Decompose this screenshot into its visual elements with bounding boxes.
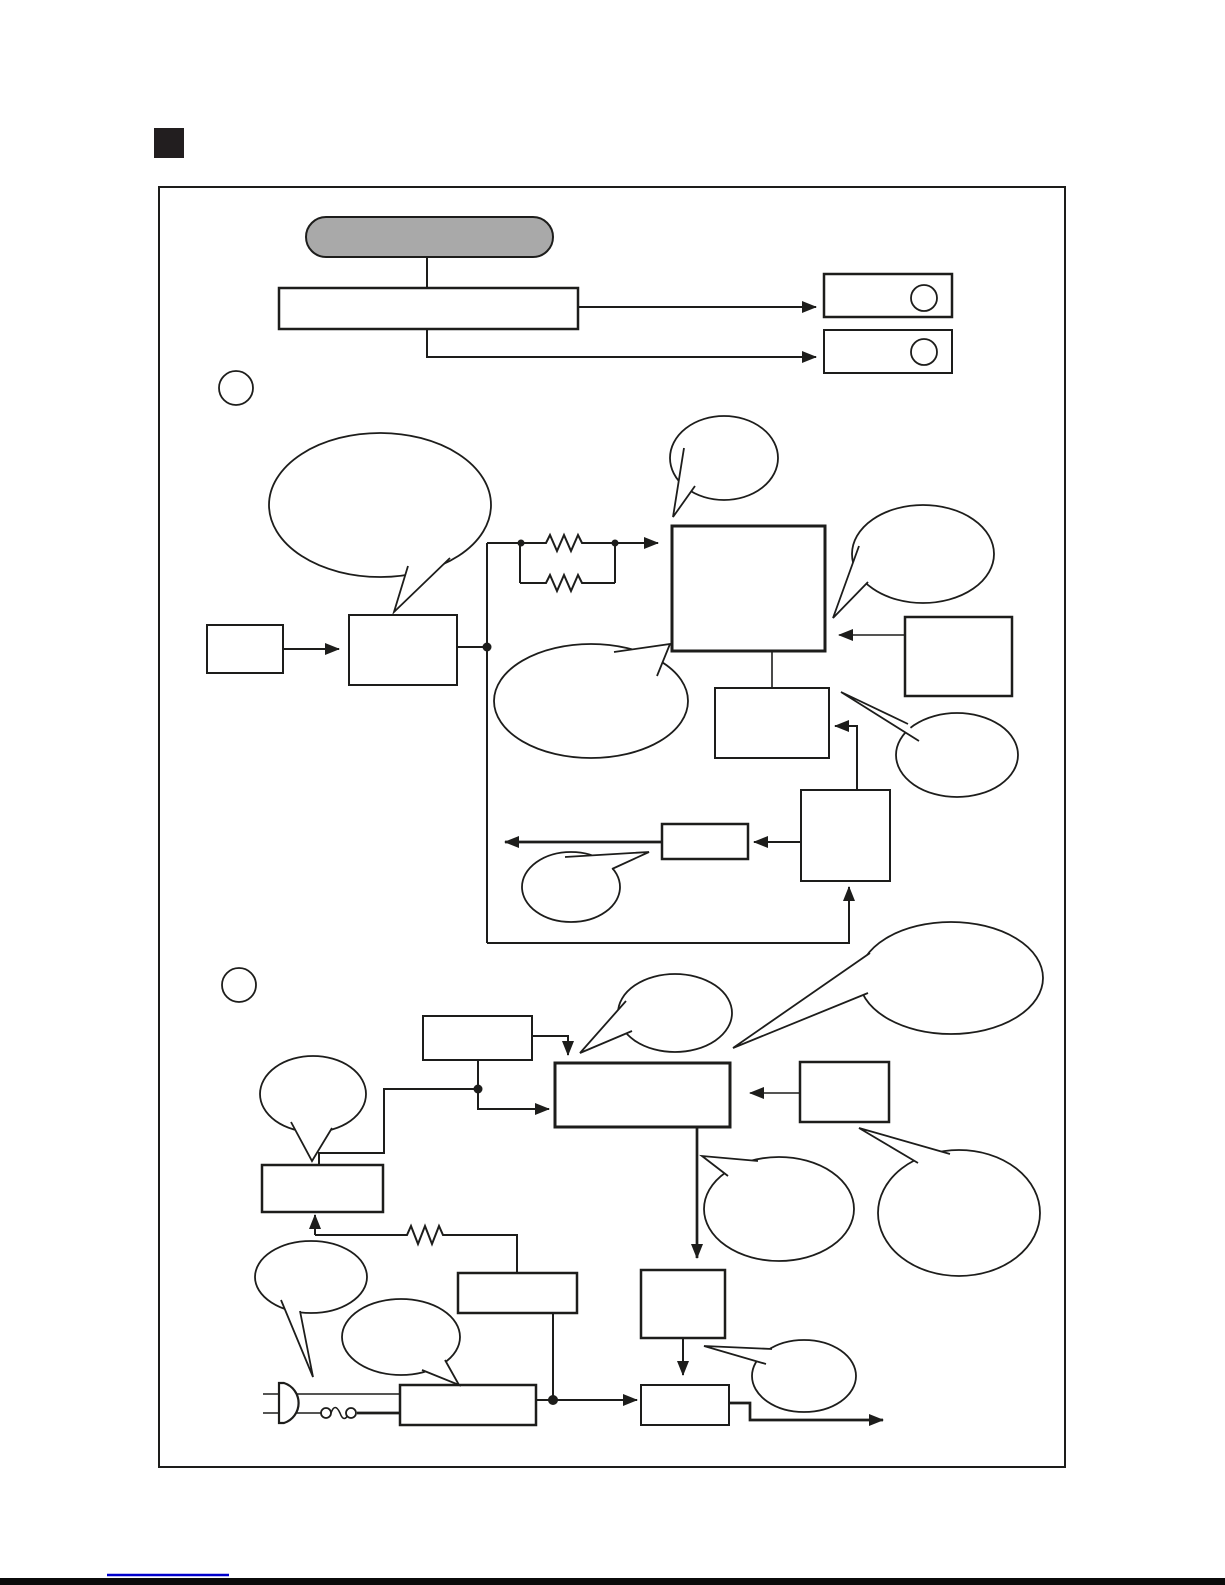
s2-relay-box xyxy=(641,1270,725,1338)
junction-dot xyxy=(548,1395,558,1405)
s1-process-box xyxy=(349,615,457,685)
section-heading-marker-square xyxy=(154,128,184,158)
page-bottom-bar xyxy=(0,1578,1225,1585)
note-bubble-s2-e xyxy=(702,1156,854,1261)
diagram-canvas xyxy=(0,0,1225,1585)
s2-left-box xyxy=(262,1165,383,1212)
fuse-terminal-circle xyxy=(321,1408,331,1418)
note-bubble-s2-d xyxy=(859,1128,1040,1276)
fuse-terminal-circle xyxy=(346,1408,356,1418)
junction-dot xyxy=(518,540,525,547)
s2-top-box xyxy=(423,1016,532,1060)
s1-main-box xyxy=(672,526,825,651)
s2-output-box xyxy=(641,1385,729,1425)
s2-lower-mid-box xyxy=(458,1273,577,1313)
note-bubble-s1-b xyxy=(670,416,778,517)
s1-input-box xyxy=(207,625,283,673)
speech-bubble-tail xyxy=(291,1122,332,1161)
speech-bubble-ellipse xyxy=(859,922,1043,1034)
s1-indicator-box-2 xyxy=(824,330,952,373)
speech-bubble-ellipse xyxy=(260,1056,366,1132)
speech-bubble-tail xyxy=(859,1128,950,1163)
indicator-lamp-circle xyxy=(911,339,937,365)
note-bubble-s1-e xyxy=(841,692,1018,797)
resistor-icon-bottom xyxy=(520,575,615,591)
junction-dot xyxy=(483,643,492,652)
arrow-to-indicator-box-2 xyxy=(427,329,816,357)
note-bubble-s1-a xyxy=(269,433,491,612)
speech-bubble-tail xyxy=(733,953,870,1048)
note-bubble-s2-c xyxy=(260,1056,366,1161)
junction-dot xyxy=(612,540,619,547)
step-marker-circle-1 xyxy=(219,371,253,405)
s1-indicator-box-1 xyxy=(824,274,952,317)
speech-bubble-ellipse xyxy=(896,713,1018,797)
section-2 xyxy=(222,922,1043,1425)
arrow-top-to-main xyxy=(532,1036,568,1055)
speech-bubble-ellipse xyxy=(878,1150,1040,1276)
section-1 xyxy=(207,217,1018,943)
s1-header-box xyxy=(279,288,578,329)
speech-bubble-tail xyxy=(841,692,919,741)
note-bubble-s2-a xyxy=(580,974,732,1053)
note-bubble-s1-c xyxy=(833,505,994,618)
note-bubble-s2-h xyxy=(342,1299,460,1385)
speech-bubble-ellipse xyxy=(618,974,732,1052)
arrow-junction-to-main xyxy=(478,1089,549,1109)
arrow-control-to-mid xyxy=(835,726,857,790)
plug-body-icon xyxy=(279,1383,299,1423)
step-marker-circle-2 xyxy=(222,968,256,1002)
s1-output-chip-box xyxy=(662,824,748,859)
parallel-resistor-network xyxy=(520,535,615,591)
s2-main-box xyxy=(555,1063,730,1127)
s1-control-box xyxy=(801,790,890,881)
s2-side-box xyxy=(800,1062,889,1122)
speech-bubble-tail xyxy=(580,1001,632,1053)
s1-mid-box xyxy=(715,688,829,758)
speech-bubble-ellipse xyxy=(269,433,491,577)
speech-bubble-tail xyxy=(704,1346,772,1364)
ac-plug-symbol xyxy=(263,1383,400,1423)
start-pill xyxy=(306,217,553,257)
speech-bubble-ellipse xyxy=(852,505,994,603)
note-bubble-s1-d xyxy=(494,644,688,758)
s2-ac-input-box xyxy=(400,1385,536,1425)
note-bubble-s2-b xyxy=(733,922,1043,1048)
indicator-lamp-circle xyxy=(911,285,937,311)
note-bubble-s1-f xyxy=(522,852,649,922)
resistor-icon-top xyxy=(520,535,615,551)
junction-dot xyxy=(474,1085,483,1094)
s1-side-box xyxy=(905,617,1012,696)
speech-bubble-ellipse xyxy=(255,1241,367,1313)
